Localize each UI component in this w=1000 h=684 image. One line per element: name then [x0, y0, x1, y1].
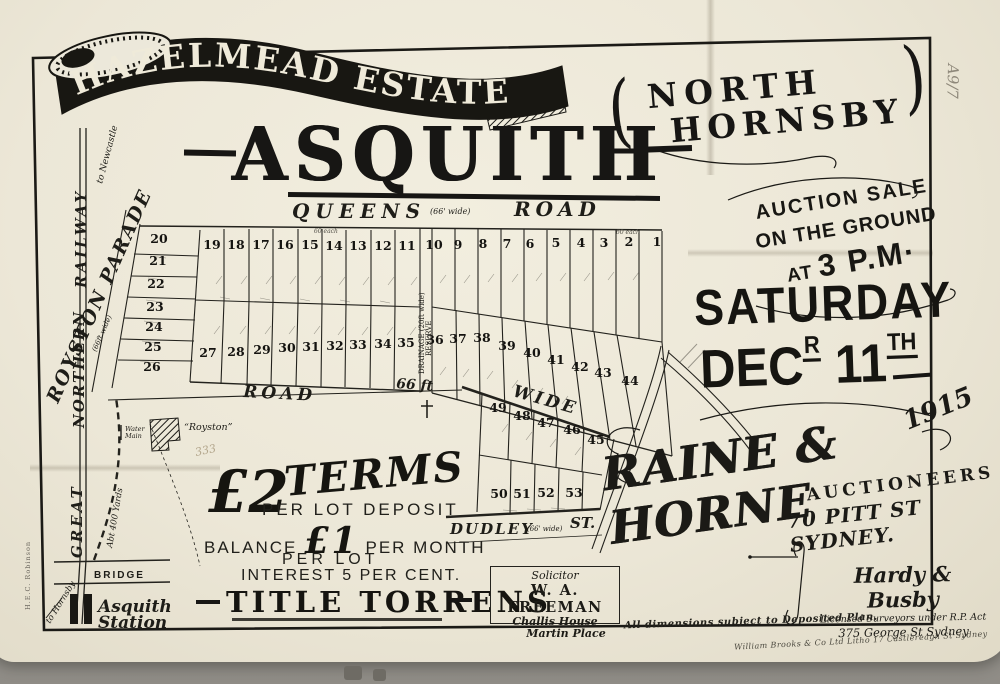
lot-number-12: 12 — [374, 238, 391, 253]
lot-number-7: 7 — [503, 236, 512, 251]
measure-each-1: 60 each — [314, 228, 338, 235]
water-main-label-2: Main — [124, 432, 142, 440]
lot-number-14: 14 — [325, 238, 343, 253]
mid-road-label: ROAD — [242, 382, 317, 406]
queens-road-label: QUEENS — [292, 199, 426, 223]
lot-number-15: 15 — [301, 237, 318, 252]
lot-number-2: 2 — [625, 234, 634, 249]
date-month-sup: R — [802, 331, 821, 362]
mid-road-width: 66 ft — [396, 376, 434, 395]
lot-number-39: 39 — [498, 338, 515, 353]
lot-number-8: 8 — [479, 236, 488, 251]
lot-number-24: 24 — [145, 319, 163, 334]
lot-number-22: 22 — [147, 276, 164, 291]
solicitor-address-2: Martin Place — [491, 628, 619, 640]
lot-number-6: 6 — [526, 236, 535, 251]
poster-photo: QUEENS (66' wide) ROAD ROAD 66 ft WIDE D… — [0, 0, 1000, 684]
lot-number-4: 4 — [577, 235, 586, 250]
lot-number-21: 21 — [149, 253, 166, 268]
lot-number-44: 44 — [621, 373, 639, 388]
date-month: DEC — [699, 337, 804, 400]
balance-per-month: PER MONTH — [365, 538, 485, 558]
queens-road-label-2: ROAD — [513, 197, 601, 221]
lot-number-9: 9 — [454, 237, 463, 252]
distance-label: Abt 400 Yards — [105, 487, 126, 550]
date-number: 11 — [834, 334, 888, 395]
station-track-bar — [84, 594, 92, 624]
royston-house-label: “Royston” — [184, 422, 233, 433]
main-title: ASQUITH — [232, 110, 664, 197]
lot-number-19: 19 — [203, 237, 220, 252]
lot-number-17: 17 — [252, 237, 269, 252]
station-label-2: Station — [98, 613, 167, 633]
auction-date: DECR 11TH — [699, 327, 919, 401]
royston-house — [150, 418, 180, 451]
lot-number-52: 52 — [537, 485, 554, 500]
lot-number-35: 35 — [397, 335, 414, 350]
lot-number-5: 5 — [552, 235, 561, 250]
lot-number-26: 26 — [143, 359, 161, 374]
lot-number-29: 29 — [253, 342, 270, 357]
pencil-mark: 333 — [194, 442, 217, 459]
lot-number-23: 23 — [146, 299, 163, 314]
lot-number-27: 27 — [199, 345, 216, 360]
railway-label: RAILWAY — [72, 189, 90, 289]
terms-interest: INTEREST 5 PER CENT. — [241, 567, 461, 585]
lot-number-50: 50 — [490, 486, 508, 501]
torrens-dash-right — [448, 598, 472, 602]
torrens-dash-left — [196, 600, 220, 604]
lot-number-46: 46 — [563, 422, 581, 437]
lot-number-10: 10 — [425, 237, 443, 252]
royston-parade-label: ROYSTON PARADE — [42, 186, 157, 407]
dudley-st-width: (66' wide) — [527, 525, 563, 533]
terms-deposit-line: PER LOT DEPOSIT — [262, 500, 459, 520]
solicitor-role: Solicitor — [491, 569, 619, 582]
lot-number-11: 11 — [398, 238, 415, 253]
catalog-pencil-mark: A9/7 — [943, 64, 962, 99]
lot-number-16: 16 — [276, 237, 294, 252]
lot-number-18: 18 — [227, 237, 245, 252]
railway-great-label: GREAT — [68, 484, 86, 558]
lot-number-37: 37 — [449, 331, 466, 346]
lot-number-28: 28 — [227, 344, 245, 359]
date-number-sup: TH — [886, 327, 918, 359]
station-track-bar — [70, 594, 78, 624]
lot-number-47: 47 — [537, 415, 554, 430]
lot-number-42: 42 — [571, 359, 588, 374]
banner-title-text: HAZELMEAD ESTATE — [65, 35, 512, 112]
lot-number-53: 53 — [565, 485, 582, 500]
torrens-underline — [232, 618, 442, 621]
lot-number-34: 34 — [374, 336, 392, 351]
lot-number-20: 20 — [150, 231, 168, 246]
lot-number-31: 31 — [302, 339, 319, 354]
lot-number-13: 13 — [349, 238, 366, 253]
bridge-label: BRIDGE — [94, 570, 145, 581]
lot-number-40: 40 — [523, 345, 541, 360]
solicitor-name: W. A. FREEMAN — [491, 582, 619, 616]
flourish-dot — [748, 555, 752, 559]
lot-number-48: 48 — [513, 408, 531, 423]
solicitor-box: Solicitor W. A. FREEMAN Challis House Ma… — [490, 566, 620, 624]
lot-number-49: 49 — [489, 400, 506, 415]
lot-number-32: 32 — [326, 338, 343, 353]
title-dash-left — [184, 150, 236, 157]
lot-number-30: 30 — [278, 340, 296, 355]
lot-number-38: 38 — [473, 330, 491, 345]
lot-number-3: 3 — [600, 235, 609, 250]
surveyors-name: Hardy & Busby — [817, 561, 988, 614]
to-newcastle-label: to Newcastle — [95, 125, 120, 185]
lot-number-51: 51 — [513, 486, 530, 501]
lot-number-45: 45 — [587, 432, 604, 447]
banner-title: HAZELMEAD ESTATE — [65, 35, 512, 112]
lot-number-1: 1 — [653, 234, 662, 249]
lot-number-36: 36 — [426, 332, 444, 347]
surveyors-block: Hardy & Busby Licensed Surveyors under R… — [817, 561, 988, 641]
lot-number-43: 43 — [594, 365, 611, 380]
lot-number-25: 25 — [144, 339, 161, 354]
map-seller-label: H.E.C. Robinson — [24, 541, 32, 610]
railway-northern-label: NORTHERN — [70, 310, 88, 429]
lot-number-33: 33 — [349, 337, 366, 352]
queens-road-width: (66' wide) — [430, 207, 470, 216]
dudley-st-label-2: ST. — [570, 514, 595, 532]
lot-number-41: 41 — [547, 352, 564, 367]
